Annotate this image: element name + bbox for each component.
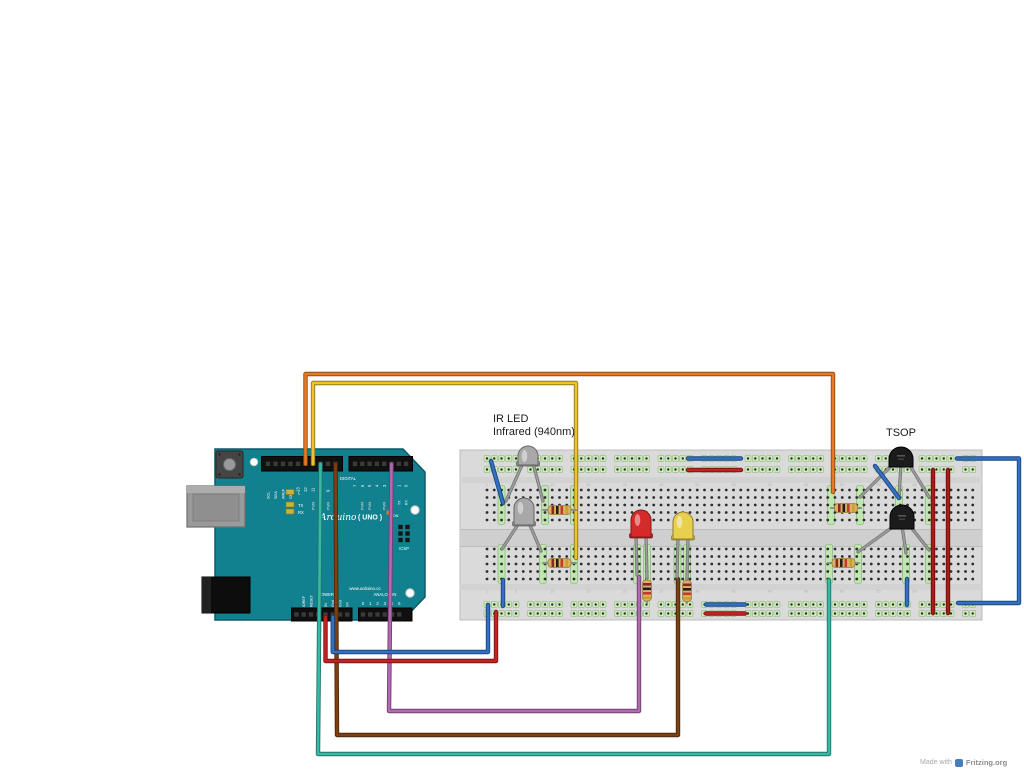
breadboard-hole	[667, 555, 670, 558]
breadboard-hole	[544, 570, 547, 573]
breadboard-hole	[826, 489, 829, 492]
breadboard-hole	[710, 563, 713, 566]
breadboard-hole	[652, 578, 655, 581]
breadboard-hole	[718, 489, 721, 492]
breadboard-hole	[870, 519, 873, 522]
breadboard-hole	[957, 563, 960, 566]
pin-label-11: 11	[311, 487, 316, 492]
breadboard-hole	[602, 519, 605, 522]
breadboard-hole	[776, 570, 779, 573]
breadboard-hole	[921, 555, 924, 558]
pin-label-aref: AREF	[282, 488, 286, 499]
rail-hole-dot	[573, 612, 575, 614]
breadboard-hole	[768, 489, 771, 492]
breadboard-hole	[805, 519, 808, 522]
breadboard-hole	[899, 570, 902, 573]
breadboard-hole	[681, 570, 684, 573]
breadboard-hole	[732, 578, 735, 581]
breadboard-hole	[660, 548, 663, 551]
breadboard-hole	[870, 489, 873, 492]
icsp-pin	[398, 531, 402, 535]
watermark-text: Made with	[920, 759, 952, 766]
rail-hole-dot	[638, 468, 640, 470]
breadboard-hole	[544, 555, 547, 558]
rail-hole-dot	[689, 603, 691, 605]
column-number: 50	[840, 589, 845, 594]
breadboard-hole	[587, 511, 590, 514]
breadboard-hole	[681, 504, 684, 507]
rail-hole-dot	[508, 603, 510, 605]
breadboard-hole	[594, 496, 597, 499]
breadboard-hole	[964, 504, 967, 507]
breadboard-hole	[747, 578, 750, 581]
breadboard-hole	[551, 496, 554, 499]
led-indicator-label: RX	[298, 510, 304, 515]
breadboard-hole	[906, 563, 909, 566]
breadboard-hole	[754, 519, 757, 522]
breadboard-hole	[942, 519, 945, 522]
breadboard-hole	[529, 548, 532, 551]
resistor-band	[643, 583, 651, 586]
breadboard-hole	[892, 504, 895, 507]
breadboard-hole	[507, 548, 510, 551]
breadboard-hole	[783, 504, 786, 507]
breadboard-hole	[935, 519, 938, 522]
rail-hole-dot	[595, 457, 597, 459]
column-number: 35	[731, 482, 736, 487]
breadboard-hole	[877, 489, 880, 492]
rail-hole-dot	[761, 468, 763, 470]
breadboard-hole	[660, 578, 663, 581]
rail-hole-dot	[508, 612, 510, 614]
resistor-band	[556, 559, 559, 567]
rail-hole-dot	[761, 612, 763, 614]
rail-hole-dot	[776, 603, 778, 605]
rail-hole-dot	[856, 603, 858, 605]
breadboard-hole	[783, 578, 786, 581]
breadboard-hole	[942, 511, 945, 514]
breadboard-hole	[739, 519, 742, 522]
breadboard-hole	[536, 504, 539, 507]
rail-hole-dot	[798, 612, 800, 614]
breadboard-hole	[747, 555, 750, 558]
breadboard-hole	[674, 496, 677, 499]
rail-hole-dot	[848, 612, 850, 614]
breadboard-hole	[783, 489, 786, 492]
rail-hole-dot	[551, 603, 553, 605]
breadboard-hole	[899, 555, 902, 558]
breadboard-hole	[558, 578, 561, 581]
breadboard-hole	[580, 578, 583, 581]
breadboard-hole	[681, 489, 684, 492]
breadboard-hole	[768, 496, 771, 499]
breadboard-hole	[942, 504, 945, 507]
breadboard-hole	[551, 548, 554, 551]
rail-hole-dot	[544, 612, 546, 614]
breadboard-hole	[848, 578, 851, 581]
breadboard-hole	[797, 555, 800, 558]
breadboard-hole	[551, 519, 554, 522]
breadboard-hole	[507, 555, 510, 558]
breadboard-hole	[522, 555, 525, 558]
breadboard-hole	[812, 496, 815, 499]
breadboard-hole	[594, 489, 597, 492]
breadboard-hole	[790, 563, 793, 566]
rail-hole-dot	[769, 457, 771, 459]
rail-hole-dot	[595, 468, 597, 470]
breadboard-hole	[942, 548, 945, 551]
rail-hole-dot	[674, 457, 676, 459]
breadboard-hole	[819, 555, 822, 558]
breadboard-hole	[870, 570, 873, 573]
breadboard-hole	[971, 578, 974, 581]
breadboard-hole	[899, 548, 902, 551]
breadboard-hole	[580, 511, 583, 514]
breadboard-hole	[761, 519, 764, 522]
led-red-body	[631, 510, 651, 537]
breadboard-hole	[797, 578, 800, 581]
breadboard-hole	[515, 578, 518, 581]
usb-connector-face	[193, 494, 239, 521]
breadboard-hole	[776, 578, 779, 581]
breadboard-hole	[935, 563, 938, 566]
breadboard-hole	[732, 511, 735, 514]
breadboard-hole	[623, 519, 626, 522]
rail-hole-dot	[943, 603, 945, 605]
breadboard-hole	[718, 548, 721, 551]
rail-hole-dot	[841, 457, 843, 459]
breadboard-hole	[928, 570, 931, 573]
breadboard-hole	[594, 548, 597, 551]
breadboard-hole	[783, 555, 786, 558]
breadboard-hole	[667, 578, 670, 581]
header-pin	[360, 462, 364, 466]
breadboard-hole	[928, 511, 931, 514]
rail-hole-dot	[624, 468, 626, 470]
breadboard-hole	[805, 570, 808, 573]
breadboard-hole	[921, 519, 924, 522]
breadboard-hole	[544, 519, 547, 522]
rail-hole-dot	[551, 612, 553, 614]
breadboard-hole	[623, 563, 626, 566]
breadboard-hole	[667, 563, 670, 566]
breadboard-hole	[841, 555, 844, 558]
breadboard-hole	[522, 563, 525, 566]
breadboard-hole	[913, 496, 916, 499]
breadboard-hole	[718, 511, 721, 514]
breadboard-hole	[870, 496, 873, 499]
breadboard-hole	[645, 489, 648, 492]
header-pin	[368, 612, 372, 616]
breadboard-hole	[703, 578, 706, 581]
rail-hole-dot	[776, 612, 778, 614]
breadboard-hole	[971, 548, 974, 551]
rail-hole-dot	[587, 603, 589, 605]
breadboard-hole	[783, 496, 786, 499]
breadboard-hole	[805, 496, 808, 499]
pwm-label: PWM	[383, 502, 387, 510]
breadboard-hole	[848, 489, 851, 492]
breadboard-hole	[631, 578, 634, 581]
breadboard-hole	[877, 548, 880, 551]
breadboard-hole	[732, 489, 735, 492]
breadboard-hole	[522, 578, 525, 581]
breadboard-hole	[551, 489, 554, 492]
rail-hole-dot	[595, 612, 597, 614]
breadboard-hole	[493, 519, 496, 522]
rail-hole-dot	[645, 612, 647, 614]
breadboard-hole	[776, 504, 779, 507]
breadboard-hole	[906, 489, 909, 492]
rail-hole-dot	[486, 468, 488, 470]
breadboard-hole	[522, 570, 525, 573]
component-leg	[687, 537, 688, 579]
resistor-band	[683, 597, 691, 600]
resistor-band	[561, 559, 564, 567]
breadboard-hole	[812, 511, 815, 514]
breadboard-hole	[623, 555, 626, 558]
led-indicator-label: TX	[298, 503, 304, 508]
rail-hole-dot	[812, 468, 814, 470]
rail-hole-dot	[790, 457, 792, 459]
breadboard-hole	[841, 519, 844, 522]
breadboard-hole	[718, 570, 721, 573]
rail-hole-dot	[935, 603, 937, 605]
breadboard-hole	[609, 555, 612, 558]
rail-hole-dot	[529, 603, 531, 605]
breadboard-hole	[645, 496, 648, 499]
analog-in-label: ANALOG IN	[374, 592, 397, 597]
breadboard-hole	[971, 519, 974, 522]
rail-hole-dot	[537, 603, 539, 605]
breadboard-hole	[834, 496, 837, 499]
breadboard-hole	[660, 489, 663, 492]
rail-hole-dot	[812, 457, 814, 459]
breadboard-hole	[660, 511, 663, 514]
rail-hole-dot	[856, 457, 858, 459]
breadboard-hole	[515, 555, 518, 558]
breadboard-hole	[565, 489, 568, 492]
breadboard-hole	[747, 489, 750, 492]
breadboard-hole	[942, 570, 945, 573]
breadboard-hole	[638, 489, 641, 492]
breadboard-hole	[652, 570, 655, 573]
breadboard-hole	[580, 489, 583, 492]
breadboard-hole	[681, 548, 684, 551]
rail-hole-dot	[682, 603, 684, 605]
breadboard-hole	[913, 504, 916, 507]
rail-hole-dot	[819, 603, 821, 605]
breadboard-hole	[739, 511, 742, 514]
breadboard-hole	[892, 563, 895, 566]
breadboard-hole	[921, 578, 924, 581]
rail-hole-dot	[906, 612, 908, 614]
breadboard-hole	[884, 548, 887, 551]
breadboard-hole	[558, 548, 561, 551]
breadboard-hole	[776, 519, 779, 522]
breadboard-hole	[689, 496, 692, 499]
breadboard-hole	[696, 555, 699, 558]
rail-hole-dot	[529, 612, 531, 614]
breadboard-hole	[805, 548, 808, 551]
breadboard-hole	[768, 504, 771, 507]
breadboard-hole	[812, 519, 815, 522]
breadboard-hole	[761, 570, 764, 573]
breadboard-hole	[834, 570, 837, 573]
breadboard-hole	[855, 570, 858, 573]
rail-hole-dot	[972, 468, 974, 470]
breadboard-hole	[921, 496, 924, 499]
header-pin	[397, 462, 401, 466]
rail-hole-dot	[558, 612, 560, 614]
fritzing-breadboard-diagram: 1155101015152020252530303535404045455050…	[0, 0, 1024, 773]
breadboard-hole	[964, 489, 967, 492]
breadboard-hole	[623, 489, 626, 492]
breadboard-hole	[616, 578, 619, 581]
breadboard-hole	[631, 504, 634, 507]
breadboard-hole	[935, 555, 938, 558]
breadboard-hole	[544, 489, 547, 492]
breadboard-hole	[681, 555, 684, 558]
breadboard-hole	[892, 578, 895, 581]
breadboard-hole	[819, 570, 822, 573]
breadboard-hole	[921, 570, 924, 573]
resistor-band	[683, 593, 691, 596]
rail-hole-dot	[812, 612, 814, 614]
breadboard-hole	[674, 489, 677, 492]
breadboard-hole	[536, 578, 539, 581]
rail-hole-dot	[805, 457, 807, 459]
breadboard-hole	[899, 563, 902, 566]
component-leg	[677, 537, 678, 577]
breadboard-hole	[660, 563, 663, 566]
breadboard-hole	[776, 555, 779, 558]
breadboard-hole	[754, 511, 757, 514]
header-pin	[309, 612, 313, 616]
rail-hole-dot	[790, 468, 792, 470]
breadboard-hole	[826, 570, 829, 573]
breadboard-hole	[935, 548, 938, 551]
breadboard-hole	[696, 548, 699, 551]
breadboard-hole	[892, 496, 895, 499]
breadboard-hole	[493, 496, 496, 499]
breadboard-hole	[971, 570, 974, 573]
resistor-band	[552, 506, 555, 514]
breadboard-hole	[667, 496, 670, 499]
breadboard-hole	[935, 504, 938, 507]
pin-label-sda: SDA	[274, 491, 278, 499]
rail-hole-dot	[602, 457, 604, 459]
rail-hole-dot	[616, 603, 618, 605]
breadboard-hole	[819, 519, 822, 522]
breadboard-hole	[696, 578, 699, 581]
breadboard-hole	[761, 511, 764, 514]
breadboard-hole	[515, 570, 518, 573]
header-pin	[382, 462, 386, 466]
breadboard-hole	[848, 570, 851, 573]
rail-hole-dot	[950, 457, 952, 459]
rail-hole-dot	[863, 457, 865, 459]
rail-hole-dot	[667, 603, 669, 605]
breadboard-hole	[565, 570, 568, 573]
breadboard-hole	[957, 504, 960, 507]
rail-hole-dot	[769, 468, 771, 470]
breadboard-hole	[544, 504, 547, 507]
breadboard-hole	[761, 504, 764, 507]
breadboard-hole	[710, 578, 713, 581]
rail-hole-dot	[573, 603, 575, 605]
breadboard-hole	[529, 570, 532, 573]
breadboard-hole	[609, 496, 612, 499]
rail-hole-dot	[848, 603, 850, 605]
breadboard-hole	[580, 570, 583, 573]
header-pin	[353, 462, 357, 466]
breadboard-hole	[739, 489, 742, 492]
breadboard-hole	[667, 489, 670, 492]
mounting-hole	[406, 589, 414, 597]
rail-hole-dot	[537, 468, 539, 470]
breadboard-hole	[913, 578, 916, 581]
resistor-band	[683, 588, 691, 591]
header-pin	[361, 612, 365, 616]
breadboard-hole	[507, 570, 510, 573]
breadboard-hole	[587, 548, 590, 551]
breadboard-hole	[913, 563, 916, 566]
breadboard-hole	[732, 496, 735, 499]
rail-hole-dot	[761, 603, 763, 605]
breadboard-hole	[754, 489, 757, 492]
breadboard-hole	[921, 511, 924, 514]
breadboard-hole	[660, 555, 663, 558]
breadboard-hole	[602, 578, 605, 581]
breadboard-hole	[971, 511, 974, 514]
breadboard-hole	[957, 578, 960, 581]
breadboard-hole	[623, 570, 626, 573]
breadboard-hole	[870, 563, 873, 566]
breadboard-hole	[696, 570, 699, 573]
resistor-band	[556, 506, 559, 514]
breadboard-hole	[681, 496, 684, 499]
breadboard-hole	[855, 489, 858, 492]
breadboard-hole	[529, 578, 532, 581]
breadboard-hole	[884, 519, 887, 522]
breadboard-hole	[565, 555, 568, 558]
rail-hole-dot	[631, 612, 633, 614]
breadboard-hole	[805, 504, 808, 507]
breadboard-hole	[529, 496, 532, 499]
rail-hole-dot	[841, 612, 843, 614]
header-pin	[404, 462, 408, 466]
breadboard-hole	[928, 578, 931, 581]
tsop-receiver-1-marking	[898, 459, 904, 460]
breadboard-hole	[906, 496, 909, 499]
rail-hole-dot	[500, 468, 502, 470]
rail-hole-dot	[899, 612, 901, 614]
rail-hole-dot	[660, 603, 662, 605]
breadboard-hole	[710, 504, 713, 507]
breadboard-hole	[797, 489, 800, 492]
breadboard-hole	[580, 496, 583, 499]
watermark: Made with Fritzing.org	[920, 758, 1007, 767]
rail-hole-dot	[624, 603, 626, 605]
breadboard-hole	[863, 496, 866, 499]
reset-button-pin	[218, 453, 220, 455]
rail-hole-dot	[544, 603, 546, 605]
resistor-band	[850, 559, 853, 567]
rail-hole-dot	[580, 457, 582, 459]
breadboard-hole	[747, 548, 750, 551]
breadboard-hole	[725, 519, 728, 522]
